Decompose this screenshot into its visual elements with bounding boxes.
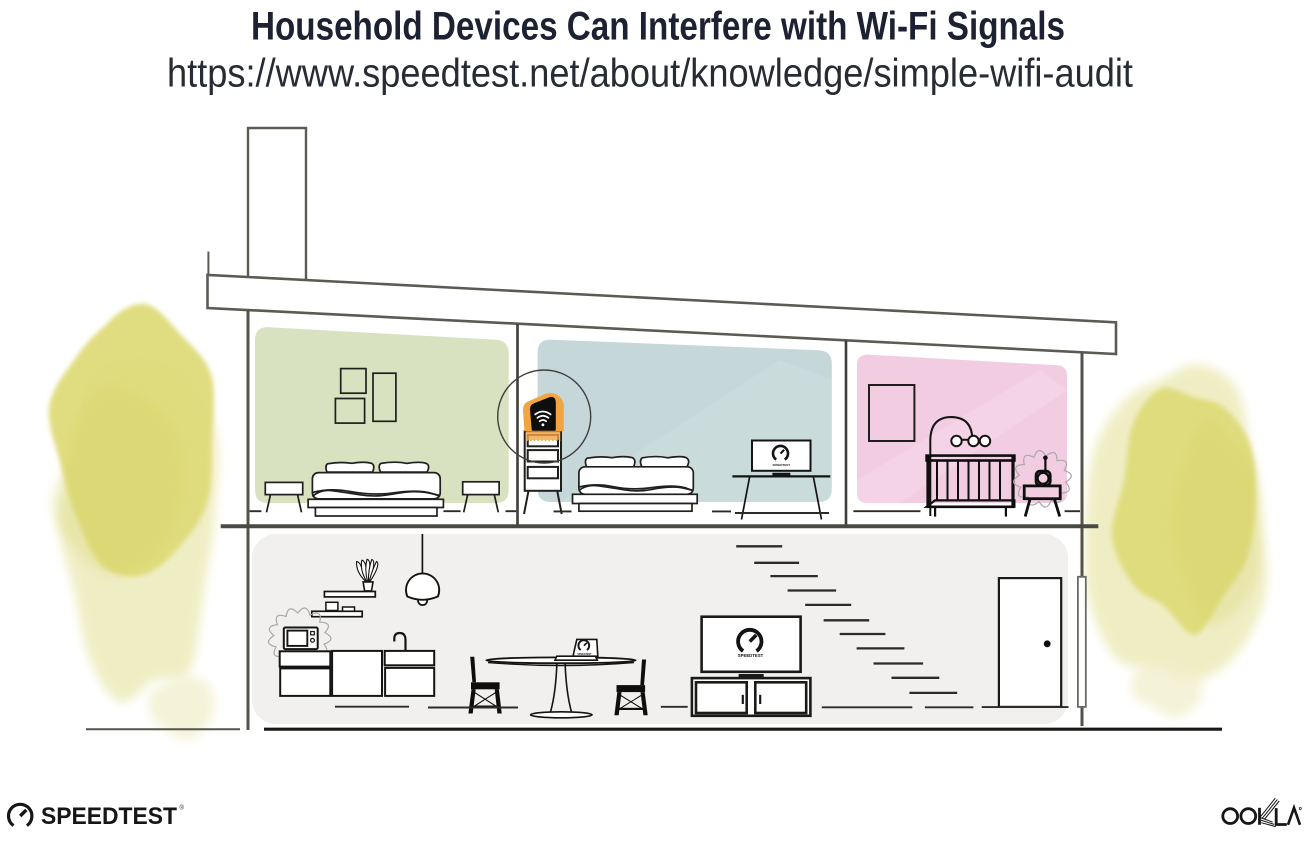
svg-text:Household Devices Can Interfer: Household Devices Can Interfere with Wi-…	[251, 5, 1065, 49]
svg-text:®: ®	[180, 805, 185, 812]
svg-text:SPEEDTEST: SPEEDTEST	[738, 653, 764, 658]
svg-text:https://www.speedtest.net/abou: https://www.speedtest.net/about/knowledg…	[167, 52, 1133, 96]
svg-text:SPEEDTEST: SPEEDTEST	[41, 803, 177, 830]
svg-text:SPEEDTEST: SPEEDTEST	[773, 463, 791, 467]
svg-text:SPEEDTEST: SPEEDTEST	[577, 653, 592, 656]
